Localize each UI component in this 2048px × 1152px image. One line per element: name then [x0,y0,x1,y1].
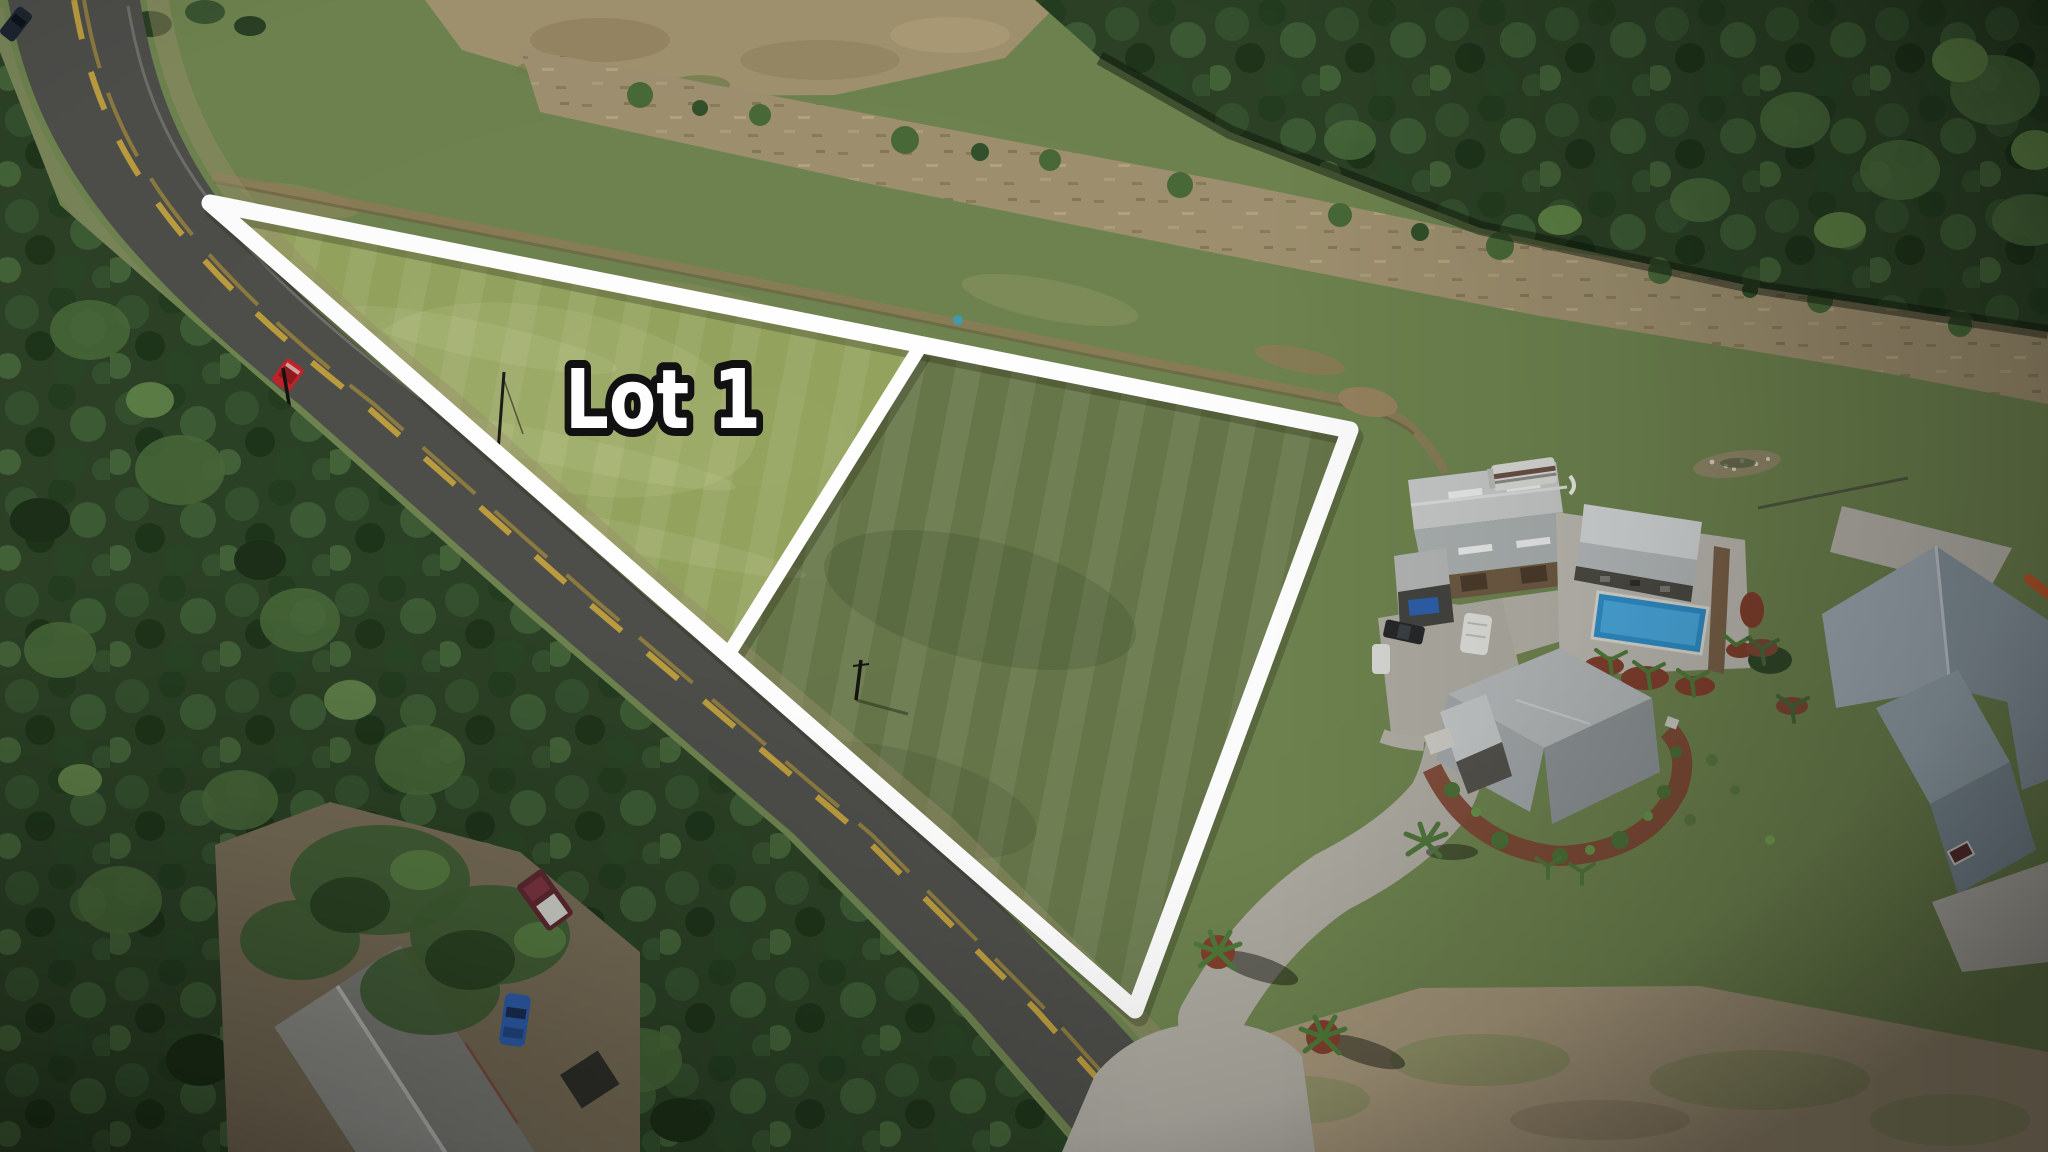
screenshot-root: Lot 1 [0,0,2048,1152]
bottom-left-dim-overlay [0,0,2048,1152]
aerial-photo: Lot 1 [0,0,2048,1152]
